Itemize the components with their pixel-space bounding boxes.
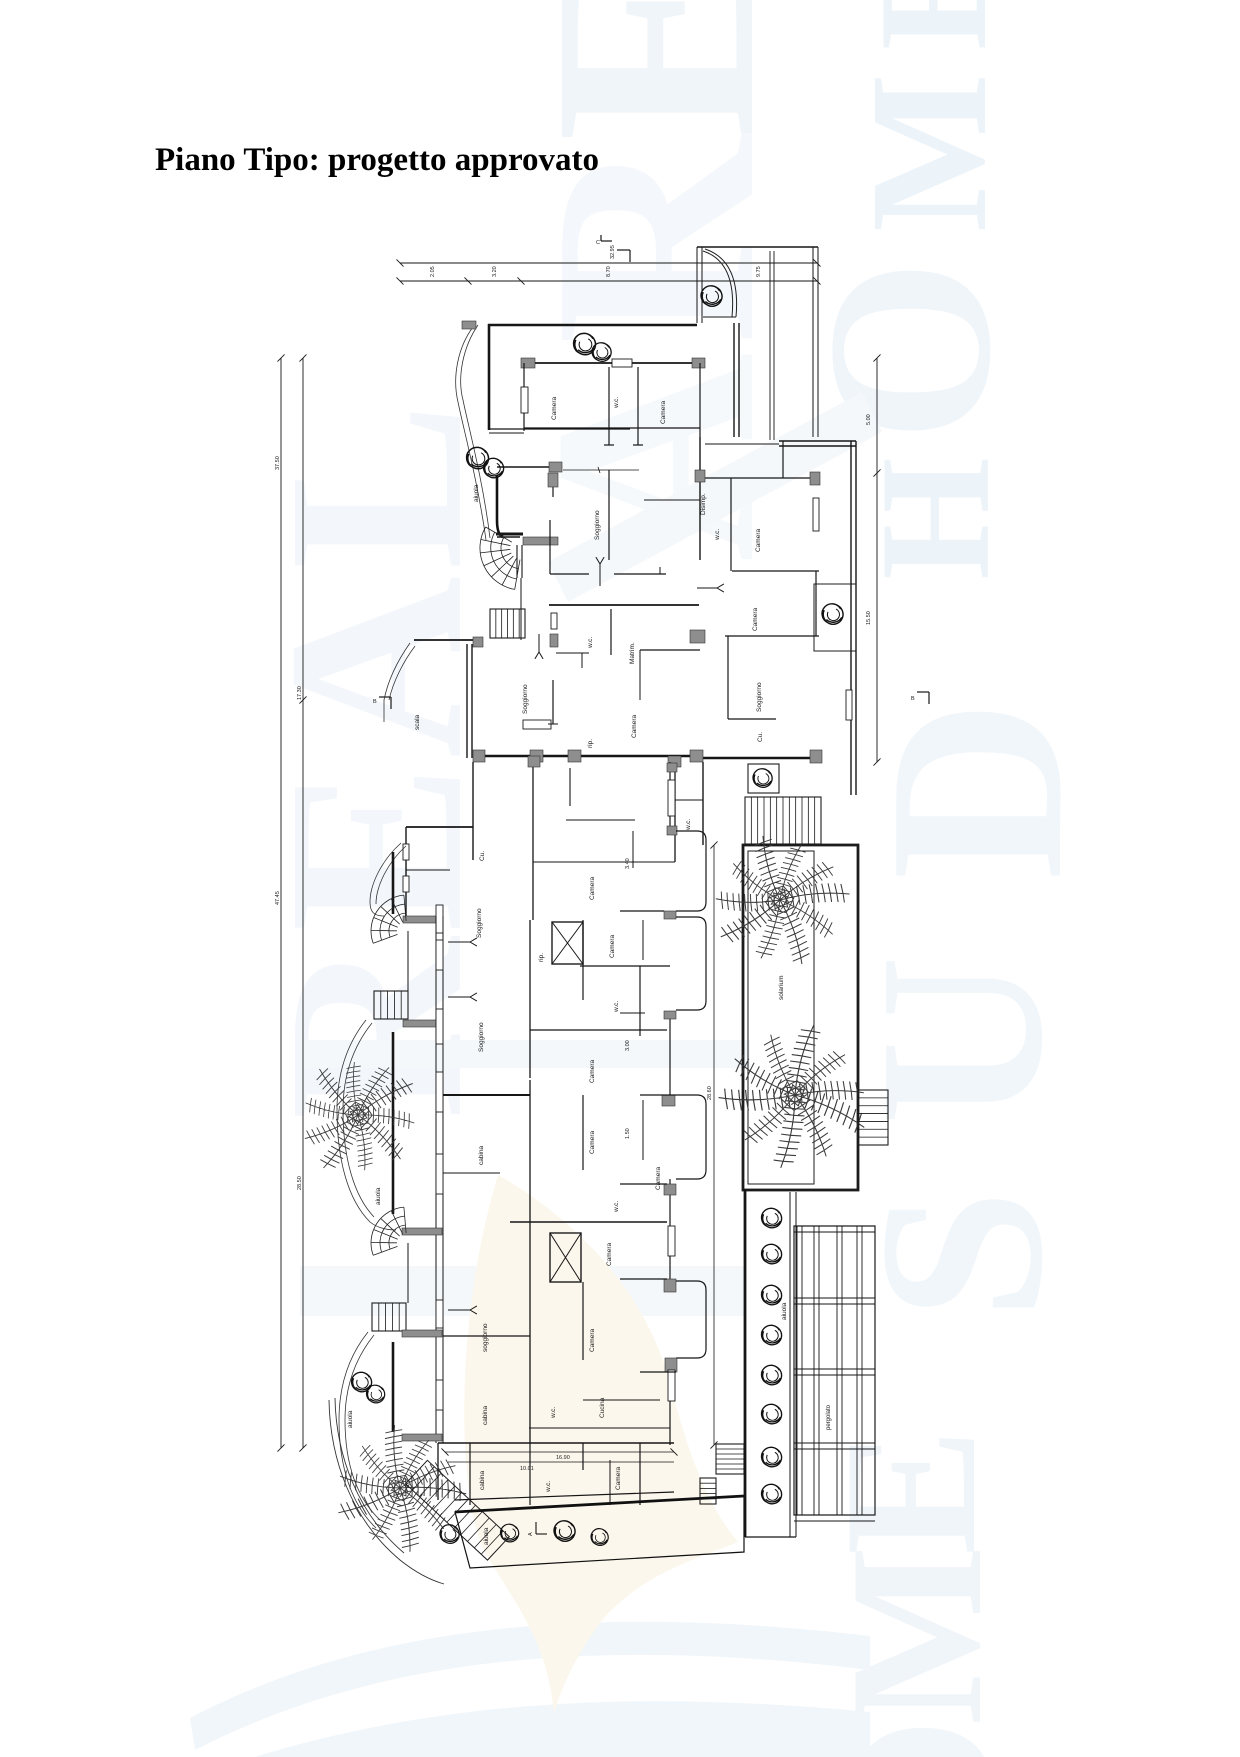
svg-text:3.20: 3.20 [492,266,498,277]
svg-text:Cucina: Cucina [599,1397,606,1418]
svg-text:3.00: 3.00 [625,1040,631,1051]
svg-text:w.c.: w.c. [545,1481,552,1493]
svg-text:Cu.: Cu. [757,732,764,742]
svg-text:solarium: solarium [778,975,785,1000]
svg-text:w.c.: w.c. [613,1001,620,1013]
svg-text:pergolato: pergolato [826,1404,832,1430]
svg-text:w.c.: w.c. [613,397,620,409]
svg-text:15.50: 15.50 [866,611,872,625]
svg-text:1.50: 1.50 [625,1128,631,1139]
svg-text:U: U [831,955,1091,1125]
svg-text:aiuola: aiuola [375,1187,382,1205]
svg-text:2.05: 2.05 [430,266,436,277]
svg-text:soggiorno: soggiorno [482,1323,489,1352]
svg-text:w.c.: w.c. [685,819,692,831]
svg-text:aiuola: aiuola [483,1527,490,1545]
svg-text:aiuola: aiuola [781,1302,788,1320]
svg-text:Soggiorno: Soggiorno [478,1022,485,1052]
svg-text:17.30: 17.30 [297,686,303,700]
svg-text:Camera: Camera [631,714,638,738]
svg-text:A: A [528,1532,534,1536]
svg-text:w.c.: w.c. [714,529,721,541]
svg-text:B: B [373,699,377,705]
svg-text:10.01: 10.01 [520,1466,534,1472]
svg-text:aiuola: aiuola [347,1410,354,1428]
svg-text:16.90: 16.90 [556,1455,570,1461]
svg-text:w.c.: w.c. [587,637,594,649]
svg-text:cabina: cabina [479,1470,486,1490]
svg-text:32.95: 32.95 [610,245,616,259]
svg-text:C: C [596,240,600,246]
svg-text:37.50: 37.50 [275,456,281,470]
svg-text:Camera: Camera [589,876,596,900]
svg-text:Camera: Camera [609,934,616,958]
svg-text:Disimp.: Disimp. [700,493,707,515]
svg-text:w.c.: w.c. [613,1201,620,1213]
svg-text:Camera: Camera [589,1328,596,1352]
svg-text:Camera: Camera [615,1466,622,1490]
svg-text:Camera: Camera [589,1130,596,1154]
svg-text:w.c.: w.c. [550,1407,557,1419]
svg-text:cabina: cabina [482,1405,489,1425]
svg-text:M: M [836,73,1022,232]
svg-text:Matrim.: Matrim. [629,642,636,664]
svg-text:D: D [838,699,1115,880]
svg-text:Camera: Camera [755,528,762,552]
svg-text:cabina: cabina [478,1145,485,1165]
svg-text:Soggiorno: Soggiorno [756,682,763,712]
svg-text:3.40: 3.40 [625,858,631,869]
svg-text:Camera: Camera [551,396,558,420]
svg-text:rip.: rip. [538,953,545,962]
svg-text:aiuola: aiuola [473,484,480,502]
svg-text:E: E [806,1428,1016,1555]
svg-text:8.70: 8.70 [606,266,612,277]
svg-text:Camera: Camera [606,1242,613,1266]
svg-text:Camera: Camera [589,1059,596,1083]
svg-text:S: S [831,1189,1091,1320]
svg-text:Camera: Camera [655,1166,662,1190]
svg-text:28.50: 28.50 [297,1176,303,1190]
svg-text:Cu.: Cu. [479,851,486,861]
svg-text:rip.: rip. [587,739,594,748]
svg-text:9.75: 9.75 [756,266,762,277]
svg-text:28.60: 28.60 [707,1086,713,1100]
svg-text:Soggiorno: Soggiorno [594,510,601,540]
svg-text:5.00: 5.00 [866,414,872,425]
svg-text:Soggiorno: Soggiorno [522,684,529,714]
svg-text:E: E [847,0,1019,50]
svg-text:E: E [494,0,815,142]
svg-text:Camera: Camera [660,400,667,424]
svg-text:Piano Tipo: progetto approvato: Piano Tipo: progetto approvato [155,142,599,178]
svg-text:Camera: Camera [752,607,759,631]
svg-text:B: B [911,696,915,702]
svg-text:47.45: 47.45 [275,891,281,905]
svg-text:scala: scala [414,714,421,730]
svg-text:Soggiorno: Soggiorno [476,908,483,938]
